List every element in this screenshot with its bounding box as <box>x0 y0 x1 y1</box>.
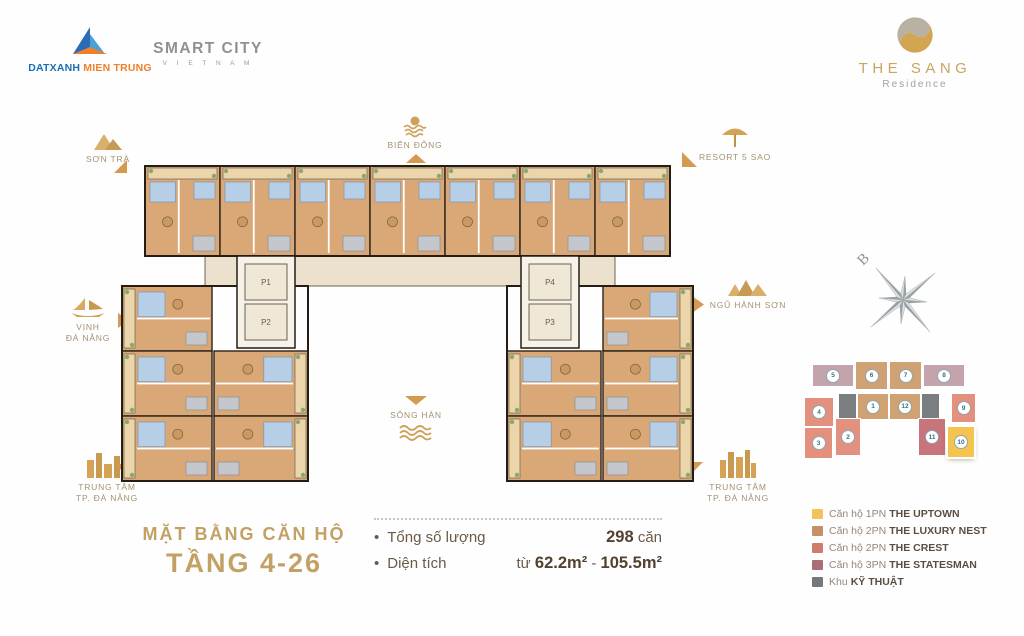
the-sang-subtitle: Residence <box>882 79 947 90</box>
stat-area: • Diện tích từ 62.2m² - 105.5m² <box>374 554 662 573</box>
legend-label: Căn hộ 1PN <box>829 508 886 520</box>
page-title: MẶT BẰNG CĂN HỘ TẦNG 4-26 <box>118 524 370 579</box>
key-plan-unit-8: 8 <box>924 365 964 386</box>
key-plan-unit-number: 7 <box>899 369 913 383</box>
stat-quantity-number: 298 <box>606 528 634 546</box>
apartment-unit <box>214 351 308 416</box>
mientrung-name: MIEN TRUNG <box>83 62 152 74</box>
landmark-label: ĐÀ NẴNG <box>66 333 110 344</box>
key-plan-unit-number: 4 <box>812 405 826 419</box>
beach-umbrella-icon <box>720 124 750 150</box>
landmark-resort: RESORT 5 SAO <box>690 124 780 163</box>
apartment-unit <box>507 416 601 481</box>
stat-area-min: 62.2m² <box>535 554 587 572</box>
legend-name: THE STATESMAN <box>889 559 977 571</box>
apartment-unit <box>445 166 520 256</box>
bullet-icon: • <box>374 555 379 572</box>
legend-item: KhuKỸ THUẬT <box>812 576 1020 588</box>
legend-label: Căn hộ 2PN <box>829 542 886 554</box>
bullet-icon: • <box>374 529 379 546</box>
stat-label: Tổng số lượng <box>387 529 606 546</box>
apartment-unit <box>122 286 212 351</box>
legend-swatch <box>812 560 823 570</box>
landmark-vinh-da-nang: VỊNH ĐÀ NẴNG <box>56 296 120 343</box>
key-plan-unit-number: 12 <box>898 400 912 414</box>
mountains-icon <box>727 276 769 298</box>
apartment-unit <box>370 166 445 256</box>
key-plan-unit-number: 1 <box>866 400 880 414</box>
mountain-icon <box>92 130 124 152</box>
key-plan-unit-number: 10 <box>954 435 968 449</box>
datxanh-wordmark: DATXANH MIEN TRUNG <box>28 62 152 74</box>
landmark-label: VỊNH <box>76 322 100 333</box>
key-plan-unit-10: 10 <box>948 427 974 457</box>
title-line2: TẦNG 4-26 <box>118 548 370 579</box>
landmark-label: TP. ĐÀ NẴNG <box>76 493 138 504</box>
smartcity-wordmark: SMART CITY <box>153 40 263 58</box>
title-line1: MẶT BẰNG CĂN HỘ <box>118 524 370 545</box>
legend-swatch <box>812 526 823 536</box>
key-plan: 567841129321110 <box>805 352 985 467</box>
legend-swatch <box>812 543 823 553</box>
legend-swatch <box>812 509 823 519</box>
stat-value: từ 62.2m² - 105.5m² <box>517 554 662 573</box>
stat-area-separator: - <box>591 555 596 572</box>
landmark-bien-dong: BIỂN ĐÔNG <box>383 112 447 151</box>
key-plan-unit-5: 5 <box>813 365 853 386</box>
compass-north-label: B <box>855 250 873 268</box>
key-plan-unit-3: 3 <box>805 428 832 458</box>
apartment-unit <box>295 166 370 256</box>
landmark-label: BIỂN ĐÔNG <box>388 140 443 151</box>
apartment-unit <box>603 351 693 416</box>
landmark-label: TP. ĐÀ NẴNG <box>707 493 769 504</box>
key-plan-unit-2: 2 <box>836 419 860 455</box>
poster-canvas: DATXANH MIEN TRUNG SMART CITY V I E T N … <box>0 0 1024 636</box>
legend-item: Căn hộ 2PNTHE LUXURY NEST <box>812 525 1020 537</box>
key-plan-unit-12: 12 <box>890 394 920 419</box>
key-plan-unit-6: 6 <box>856 362 887 389</box>
key-plan-unit-4: 4 <box>805 398 833 426</box>
elevator-p2-label: P2 <box>261 318 271 327</box>
apartment-unit <box>122 416 212 481</box>
legend-label: Căn hộ 2PN <box>829 525 886 537</box>
legend-item: Căn hộ 3PNTHE STATESMAN <box>812 559 1020 571</box>
key-plan-unit-number: 2 <box>841 430 855 444</box>
elevator-p4-label: P4 <box>545 278 555 287</box>
apartment-unit <box>507 351 601 416</box>
key-plan-unit-1: 1 <box>858 394 888 419</box>
stat-area-max: 105.5m² <box>601 554 662 572</box>
stat-label: Diện tích <box>387 555 516 572</box>
key-plan-unit-number: 3 <box>812 436 826 450</box>
landmark-center-se: TRUNG TÂM TP. ĐÀ NẴNG <box>692 448 784 503</box>
elevator-p1-label: P1 <box>261 278 271 287</box>
datxanh-name: DATXANH <box>28 62 80 74</box>
landmark-label: RESORT 5 SAO <box>699 152 771 163</box>
stat-quantity-unit: căn <box>638 529 662 546</box>
landmark-label: NGŨ HÀNH SƠN <box>710 300 786 311</box>
stat-area-prefix: từ <box>517 555 531 572</box>
legend-name: KỸ THUẬT <box>851 576 904 588</box>
the-sang-wordmark: THE SANG <box>859 60 972 77</box>
stats-panel: • Tổng số lượng 298 căn • Diện tích từ 6… <box>374 518 662 580</box>
key-plan-unit-number: 6 <box>865 369 879 383</box>
apartment-unit <box>603 416 693 481</box>
stat-quantity: • Tổng số lượng 298 căn <box>374 528 662 547</box>
sun-waves-icon <box>402 112 428 138</box>
legend-item: Căn hộ 2PNTHE CREST <box>812 542 1020 554</box>
landmark-label: TRUNG TÂM <box>709 482 767 493</box>
core: P1P2 <box>237 256 295 348</box>
key-plan-unit-11: 11 <box>919 419 945 455</box>
key-plan-unit-number: 5 <box>826 369 840 383</box>
stat-value: 298 căn <box>606 528 662 547</box>
elevator-p3-label: P3 <box>545 318 555 327</box>
compass-rose: B <box>845 240 960 355</box>
apartment-unit <box>603 286 693 351</box>
legend-label: Khu <box>829 576 848 588</box>
apartment-unit <box>122 351 212 416</box>
apartment-unit <box>595 166 670 256</box>
sailboat-icon <box>69 296 107 320</box>
key-plan-unit-number: 11 <box>925 430 939 444</box>
legend-name: THE LUXURY NEST <box>889 525 986 537</box>
apartment-unit <box>214 416 308 481</box>
apartment-unit <box>145 166 220 256</box>
legend-label: Căn hộ 3PN <box>829 559 886 571</box>
smartcity-subtitle: V I E T N A M <box>163 60 254 67</box>
datxanh-logo: DATXANH MIEN TRUNG <box>34 26 146 74</box>
legend-name: THE UPTOWN <box>889 508 959 520</box>
the-sang-swirl-icon <box>894 14 936 56</box>
landmark-ngu-hanh-son: NGŨ HÀNH SƠN <box>702 276 794 311</box>
city-skyline-icon <box>718 448 758 480</box>
key-plan-unit-number: 8 <box>937 369 951 383</box>
legend: Căn hộ 1PNTHE UPTOWNCăn hộ 2PNTHE LUXURY… <box>812 508 1020 593</box>
legend-swatch <box>812 577 823 587</box>
floor-plan: P1P2P4P3 <box>115 158 700 488</box>
key-plan-unit-7: 7 <box>890 362 921 389</box>
key-plan-unit-9: 9 <box>952 394 975 422</box>
datxanh-triangle-icon <box>63 26 117 60</box>
legend-item: Căn hộ 1PNTHE UPTOWN <box>812 508 1020 520</box>
apartment-unit <box>520 166 595 256</box>
legend-name: THE CREST <box>889 542 949 554</box>
apartment-unit <box>220 166 295 256</box>
key-plan-unit-number: 9 <box>957 401 971 415</box>
smartcity-logo: SMART CITY V I E T N A M <box>156 40 260 67</box>
the-sang-logo: THE SANG Residence <box>845 14 985 90</box>
core: P4P3 <box>521 256 579 348</box>
